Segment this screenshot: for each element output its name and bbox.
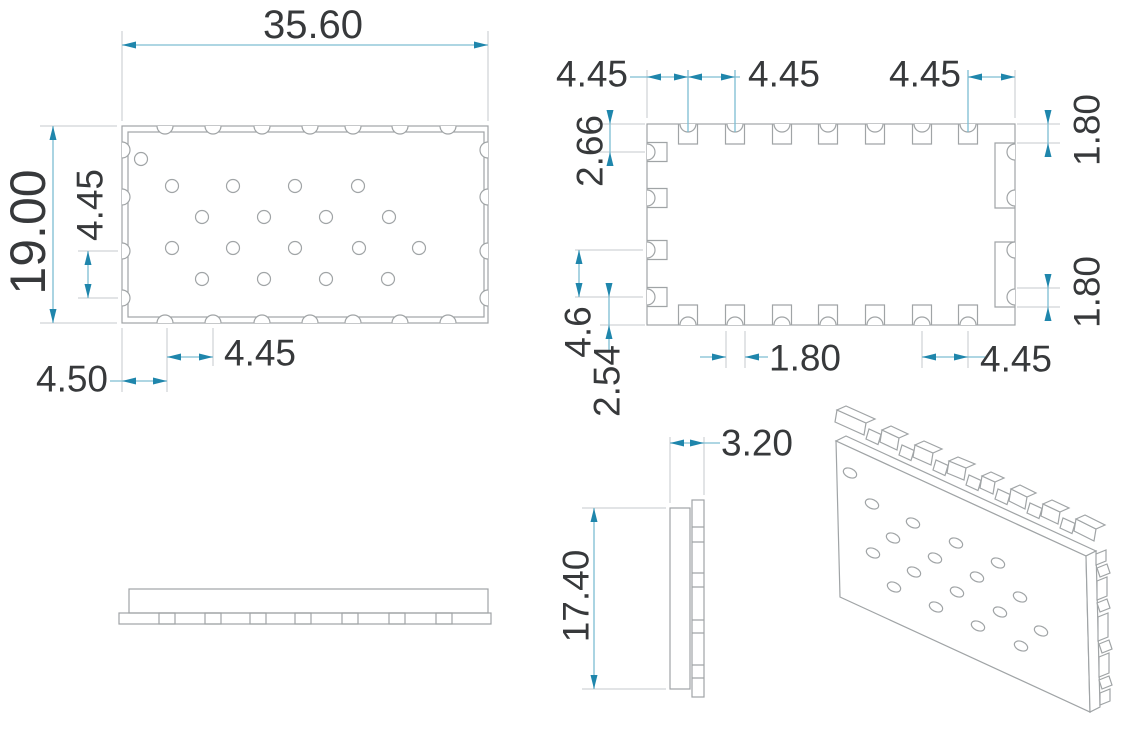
- dim-overall-height-label: 19.00: [3, 169, 53, 294]
- dim-edge-offset-label: 4.50: [36, 361, 108, 398]
- iso-view: [835, 406, 1112, 712]
- dim-bottom-castellation-pitch-label: 4.45: [224, 335, 296, 372]
- dim-thickness-label: 3.20: [721, 425, 793, 462]
- via-holes: [135, 153, 426, 286]
- bottom-view: [575, 70, 1060, 368]
- dim-right-pad-bottom-label: 1.80: [1069, 256, 1106, 328]
- dim-right-pad-top-label: 1.80: [1069, 94, 1106, 166]
- dim-side-castellation-pitch-label: 4.45: [72, 169, 109, 241]
- technical-drawing-canvas: 35.60 19.00 4.45 4.45 4.50 4.45 4.45 4.4…: [0, 0, 1143, 754]
- dim-top-pad-pitch-label: 4.45: [748, 56, 820, 93]
- dim-height-label: 17.40: [558, 550, 595, 643]
- dim-bottom-pad-width-label: 1.80: [769, 340, 841, 377]
- dim-overall-width-label: 35.60: [263, 5, 363, 45]
- dim-last-pad-to-edge-label: 4.45: [889, 56, 961, 93]
- dim-top-edge-to-side-pad-label: 2.66: [572, 115, 609, 187]
- dim-side-pad-to-bottom-edge-label: 2.54: [589, 345, 626, 417]
- dim-bottom-pad-pitch-label: 4.45: [980, 341, 1052, 378]
- dim-edge-to-first-pad-label: 4.45: [556, 56, 628, 93]
- end-view: [582, 437, 720, 697]
- side-view: [119, 589, 491, 624]
